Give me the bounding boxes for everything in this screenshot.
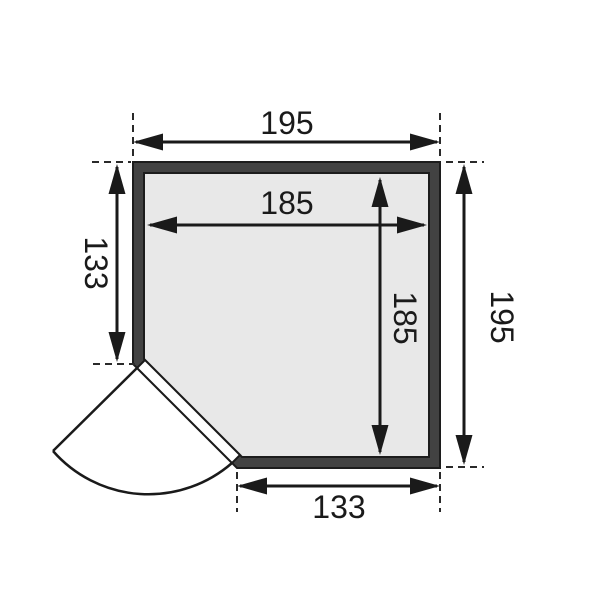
dimension-right-height: 195 — [446, 162, 520, 467]
door-swing-arc — [53, 451, 232, 494]
dimension-label-inner-height: 185 — [387, 291, 423, 344]
arrow-down-icon — [456, 435, 473, 465]
arrow-down-icon — [109, 332, 126, 362]
floor-plan-canvas: 195 185 185 133 — [0, 0, 600, 600]
dimension-label-bottom-width: 133 — [312, 489, 365, 525]
arrow-left-icon — [133, 134, 163, 151]
arrow-right-icon — [410, 134, 440, 151]
dimension-bottom-width: 133 — [237, 472, 440, 525]
arrow-up-icon — [456, 164, 473, 194]
arrow-right-icon — [410, 478, 440, 495]
dimension-label-right-height: 195 — [484, 290, 520, 343]
dimension-top-width: 195 — [133, 105, 440, 160]
floor-plan-diagram: 195 185 185 133 — [0, 0, 600, 600]
dimension-label-top-width: 195 — [260, 105, 313, 141]
dimension-left-height: 133 — [78, 162, 135, 364]
arrow-up-icon — [109, 164, 126, 194]
arrow-left-icon — [237, 478, 267, 495]
dimension-label-inner-width: 185 — [260, 185, 313, 221]
dimension-label-left-height: 133 — [78, 236, 114, 289]
door-open-line — [53, 367, 138, 451]
